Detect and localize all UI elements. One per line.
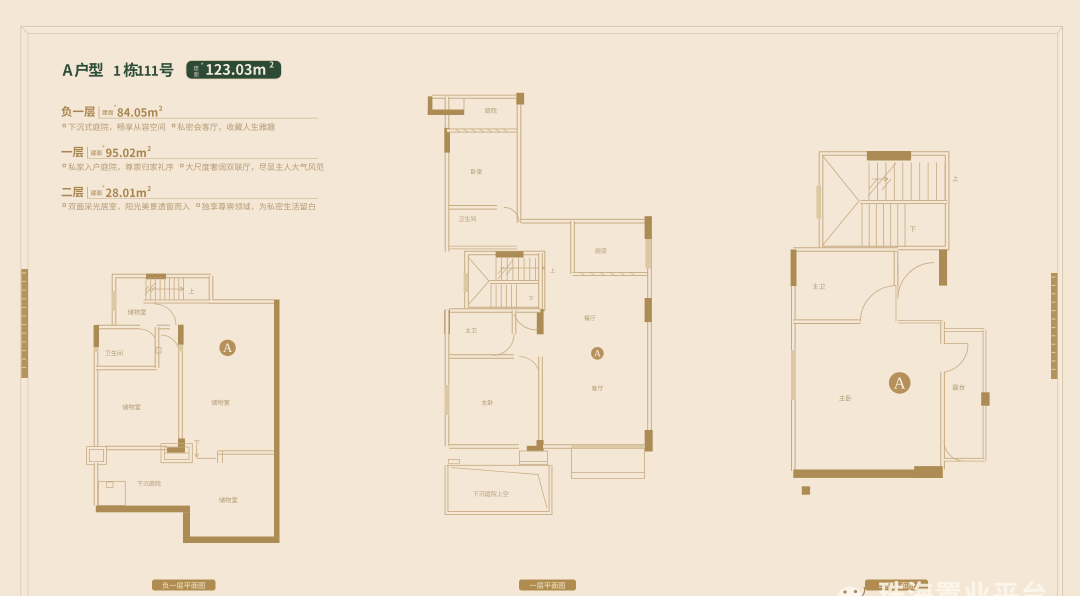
svg-text:A: A bbox=[594, 349, 601, 360]
svg-text:A: A bbox=[894, 374, 906, 393]
svg-text:A: A bbox=[223, 341, 233, 355]
